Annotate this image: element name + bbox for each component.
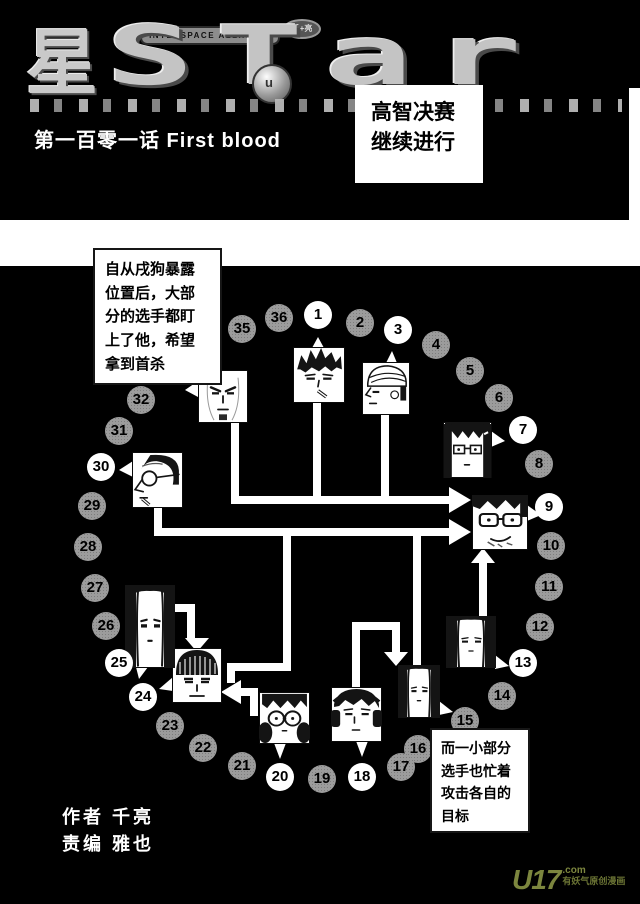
portrait-pointer-tail xyxy=(491,431,505,447)
player-number-circle: 7 xyxy=(509,416,537,444)
attack-line xyxy=(250,688,258,716)
logo-pixel-decor xyxy=(30,99,622,112)
portrait-face-art xyxy=(259,692,310,744)
portrait-pointer-tail xyxy=(356,741,368,757)
attack-line xyxy=(231,423,239,500)
attack-line xyxy=(283,532,291,671)
caption-line: 高智决赛 xyxy=(371,98,483,128)
attack-line xyxy=(175,604,193,612)
portrait-player-13 xyxy=(446,616,496,668)
player-number-circle: 1 xyxy=(304,301,332,329)
portrait-face-art xyxy=(172,648,222,703)
attack-line xyxy=(227,663,235,683)
player-number-circle: 27 xyxy=(81,574,109,602)
portrait-face-art xyxy=(362,362,410,415)
player-number-circle: 29 xyxy=(78,492,106,520)
player-number-circle: 12 xyxy=(526,613,554,641)
portrait-player-25 xyxy=(125,585,175,668)
player-number-circle: 20 xyxy=(266,763,294,791)
portrait-pointer-tail xyxy=(159,677,173,691)
portrait-face-art xyxy=(125,585,175,668)
attack-arrowhead xyxy=(471,548,495,563)
player-number-circle: 23 xyxy=(156,712,184,740)
portrait-player-18 xyxy=(331,687,382,742)
narration-line: 上了他，希望 xyxy=(105,329,220,353)
attack-line xyxy=(479,561,487,616)
player-number-circle: 2 xyxy=(346,309,374,337)
portrait-pointer-tail xyxy=(274,743,286,759)
attack-line xyxy=(381,415,389,500)
narration-box-top: 自从戌狗暴露 位置后，大部 分的选手都盯 上了他，希望 拿到首杀 xyxy=(93,248,222,385)
narration-line: 目标 xyxy=(441,805,528,828)
logo-emblem-glyph: u xyxy=(265,75,273,90)
narration-box-bottom: 而一小部分 选手也忙着 攻击各自的 目标 xyxy=(430,728,530,833)
attack-line xyxy=(154,508,162,532)
portrait-pointer-tail xyxy=(495,655,509,669)
narration-line: 攻击各自的 xyxy=(441,782,528,805)
portrait-player-24 xyxy=(172,648,222,703)
player-number-circle: 17 xyxy=(387,753,415,781)
narration-line: 自从戌狗暴露 xyxy=(105,258,220,282)
attack-line xyxy=(392,630,400,654)
chapter-title: 第一百零一话 First blood xyxy=(34,124,281,153)
portrait-player-15 xyxy=(398,665,440,718)
portrait-face-art xyxy=(472,495,528,550)
player-number-circle: 21 xyxy=(228,752,256,780)
site-watermark: U17.com有妖气原创漫画 xyxy=(512,866,640,894)
portrait-player-7 xyxy=(443,422,492,478)
narration-line: 而一小部分 xyxy=(441,737,528,760)
portrait-player-20 xyxy=(259,692,310,744)
narration-line: 位置后，大部 xyxy=(105,282,220,306)
player-number-circle: 25 xyxy=(105,649,133,677)
credit-editor: 责编 雅也 xyxy=(62,831,154,858)
portrait-face-art xyxy=(443,422,492,478)
attack-arrowhead xyxy=(384,652,408,666)
player-number-circle: 9 xyxy=(535,493,563,521)
narration-line: 分的选手都盯 xyxy=(105,305,220,329)
credit-author: 作者 千亮 xyxy=(62,804,154,831)
portrait-pointer-tail xyxy=(119,461,133,477)
narration-line: 选手也忙着 xyxy=(441,760,528,783)
attack-line xyxy=(241,688,258,696)
player-number-circle: 3 xyxy=(384,316,412,344)
attack-line xyxy=(227,663,291,671)
caption-box: 高智决赛 继续进行 xyxy=(355,85,483,183)
player-number-circle: 36 xyxy=(265,304,293,332)
watermark-tld: .com xyxy=(562,866,625,876)
attack-arrowhead xyxy=(449,519,471,545)
portrait-face-art xyxy=(398,665,440,718)
player-number-circle: 30 xyxy=(87,453,115,481)
player-number-circle: 10 xyxy=(537,532,565,560)
player-number-circle: 11 xyxy=(535,573,563,601)
attack-line xyxy=(413,532,421,665)
player-number-circle: 26 xyxy=(92,612,120,640)
watermark-tagline: 有妖气原创漫画 xyxy=(562,876,625,887)
player-number-circle: 35 xyxy=(228,315,256,343)
panel-gutter-right xyxy=(629,88,640,266)
manga-page: INTERSPACE ALLIANCE 千+亮 星 STar u 第一百零一话 … xyxy=(0,0,640,904)
player-number-circle: 13 xyxy=(509,649,537,677)
logo-kanji: 星 xyxy=(26,28,98,100)
player-number-circle: 19 xyxy=(308,765,336,793)
portrait-player-3 xyxy=(362,362,410,415)
portrait-player-1 xyxy=(293,347,345,403)
portrait-pointer-tail xyxy=(136,667,148,679)
portrait-pointer-tail xyxy=(439,701,453,715)
player-number-circle: 32 xyxy=(127,386,155,414)
portrait-player-30 xyxy=(132,452,183,508)
attack-line xyxy=(231,496,449,504)
player-number-circle: 24 xyxy=(129,683,157,711)
logo-emblem-icon: u xyxy=(252,64,292,104)
attack-line xyxy=(187,604,195,640)
player-number-circle: 31 xyxy=(105,417,133,445)
player-number-circle: 5 xyxy=(456,357,484,385)
attack-arrowhead xyxy=(449,487,471,513)
attack-line xyxy=(154,528,449,536)
player-number-circle: 18 xyxy=(348,763,376,791)
caption-line: 继续进行 xyxy=(371,128,483,158)
credits: 作者 千亮 责编 雅也 xyxy=(62,804,154,858)
player-number-circle: 28 xyxy=(74,533,102,561)
portrait-face-art xyxy=(331,687,382,742)
attack-line xyxy=(352,630,360,687)
player-number-circle: 14 xyxy=(488,682,516,710)
narration-line: 拿到首杀 xyxy=(105,353,220,377)
player-number-circle: 22 xyxy=(189,734,217,762)
attack-arrowhead xyxy=(221,680,241,704)
portrait-face-art xyxy=(293,347,345,403)
watermark-brand: U17 xyxy=(512,864,560,895)
portrait-face-art xyxy=(132,452,183,508)
player-number-circle: 6 xyxy=(485,384,513,412)
attack-line xyxy=(313,403,321,500)
portrait-player-9 xyxy=(472,495,528,550)
player-number-circle: 8 xyxy=(525,450,553,478)
portrait-face-art xyxy=(446,616,496,668)
player-number-circle: 4 xyxy=(422,331,450,359)
attack-line xyxy=(352,622,400,630)
